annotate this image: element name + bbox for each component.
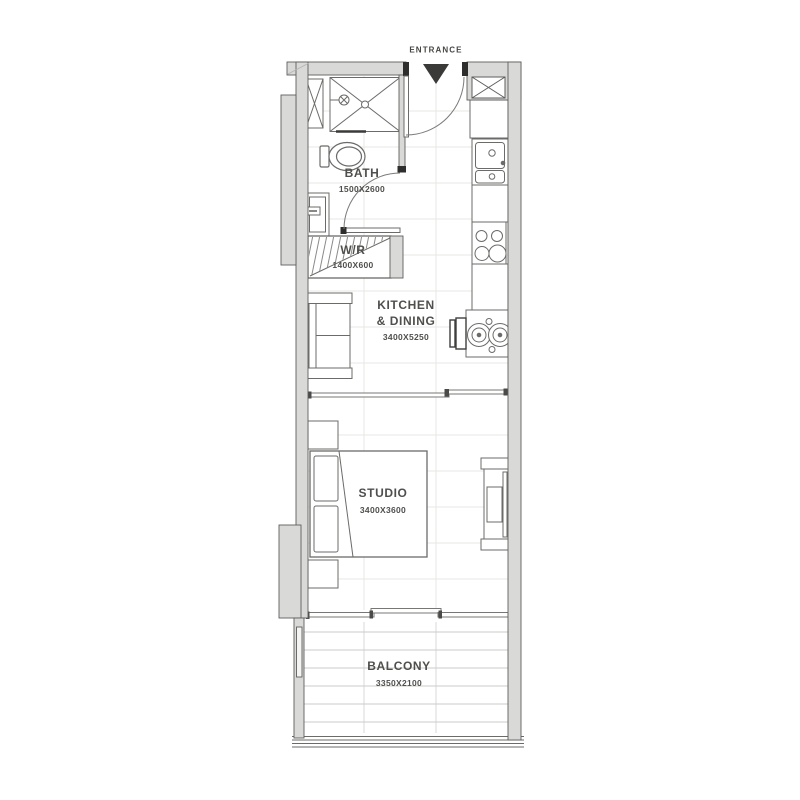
burner [492, 231, 503, 242]
kitchen-dimensions: 3400X5250 [383, 332, 429, 342]
door-leaf [344, 228, 400, 233]
door-jamb [398, 166, 407, 173]
balcony-sliding-door [306, 609, 508, 620]
entrance-arrow-icon [423, 64, 449, 84]
door-swing-arc [344, 173, 400, 229]
tv-screen [503, 472, 507, 537]
kitchen-label-line1: KITCHEN [377, 298, 435, 312]
door-jamb [341, 227, 347, 234]
balcony-dimensions: 3350X2100 [376, 678, 422, 688]
door-leaf [404, 76, 409, 137]
burner [475, 247, 489, 261]
door-jamb [403, 62, 409, 76]
pilaster-left-lower [279, 525, 301, 618]
bath-dimensions: 1500X2600 [339, 184, 385, 194]
sofa [305, 293, 352, 379]
nightstand [308, 560, 338, 588]
kitchen-counter [470, 100, 508, 310]
wardrobe-hatch [297, 235, 397, 279]
wall-right [508, 62, 521, 740]
studio-dimensions: 3400X3600 [360, 505, 406, 515]
studio-label: STUDIO [359, 486, 408, 500]
utility-cabinet [306, 79, 323, 128]
dining-table [466, 310, 512, 357]
shower [330, 78, 400, 132]
door-jamb [462, 62, 468, 76]
pillow [314, 456, 338, 501]
tv-unit [481, 458, 510, 550]
bath-label: BATH [345, 166, 380, 180]
bed [310, 451, 427, 557]
shaft-box [472, 77, 505, 98]
vanity-sink [306, 193, 329, 236]
kitchen-label-line2: & DINING [377, 314, 436, 328]
entrance-label: ENTRANCE [409, 46, 462, 55]
wr-label: W/R [340, 243, 365, 257]
pillow [314, 506, 338, 552]
dining-chair [450, 318, 466, 349]
stove [472, 222, 506, 264]
burner [476, 231, 487, 242]
balcony-label: BALCONY [367, 659, 431, 673]
wall-wr-right [390, 236, 403, 278]
floor-plan: ENTRANCE BATH 1500X2600 W/R 1400X600 KIT… [0, 0, 800, 800]
pilaster-left-upper [281, 95, 296, 265]
nightstand [308, 421, 338, 449]
balcony-wall-slot [297, 627, 303, 677]
wr-dimensions: 1400X600 [332, 260, 373, 270]
door-swing-arc [406, 77, 464, 135]
kitchen-sink [472, 139, 508, 185]
balcony-railing [292, 737, 524, 748]
sliding-partition [308, 389, 509, 399]
burner [489, 245, 506, 262]
